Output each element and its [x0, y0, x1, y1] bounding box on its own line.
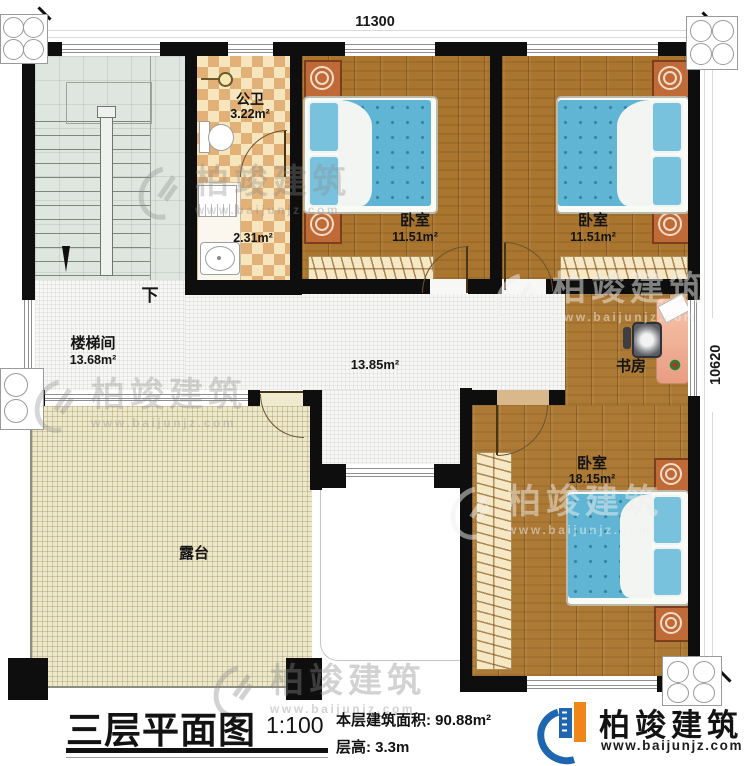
computer-monitor	[632, 322, 662, 358]
wall-lamp-icon	[218, 72, 233, 87]
wall-segment	[302, 279, 430, 294]
brand-website: www.baijunjz.com	[601, 738, 743, 753]
terrace-post	[286, 658, 322, 700]
wall-segment	[490, 42, 502, 290]
window	[527, 42, 658, 56]
floor-terrace	[30, 406, 312, 688]
wall-segment	[460, 388, 472, 676]
wall-segment	[322, 464, 346, 488]
window	[45, 392, 248, 404]
dimension-line	[22, 37, 712, 38]
brand-logo-icon	[537, 700, 595, 756]
floor-area-label: 本层建筑面积: 90.88m²	[336, 709, 491, 730]
wall-segment	[197, 280, 302, 295]
dimension-line	[704, 30, 705, 692]
room-label-bathroom: 公卫	[236, 92, 264, 106]
window	[527, 678, 657, 692]
desk-plant-icon	[668, 358, 682, 372]
scale-label: 1:100	[266, 712, 324, 739]
lower-roof-outline	[320, 488, 461, 661]
stair-direction-label: 下	[142, 287, 159, 304]
wall-segment	[549, 390, 565, 405]
nightstand	[654, 606, 690, 642]
door-leaf	[260, 391, 303, 393]
room-label-stairwell: 楼梯间	[70, 336, 115, 351]
room-label-study: 书房	[616, 359, 646, 374]
room-label-bedroom-top-right: 卧室	[578, 213, 608, 228]
page-title: 三层平面图	[66, 700, 256, 754]
window	[688, 300, 700, 396]
washer-unit	[198, 185, 237, 217]
bed-pillow	[308, 155, 340, 207]
room-area-hallway: 13.85m²	[351, 358, 399, 371]
nightstand	[304, 60, 342, 98]
stair-down-arrow-icon	[62, 246, 70, 272]
window	[346, 466, 434, 480]
window	[22, 300, 35, 373]
room-label-terrace: 露台	[179, 546, 209, 561]
bed-pillow	[652, 547, 683, 597]
wall-segment	[185, 42, 197, 295]
bed-pillow	[651, 101, 683, 153]
stair-treads	[35, 108, 150, 282]
wall-segment	[310, 390, 322, 490]
wall-lamp-line	[201, 78, 219, 80]
dimension-right: 10620	[708, 318, 742, 412]
bed-pillow	[308, 101, 340, 153]
wall-segment	[290, 42, 302, 295]
wall-segment	[460, 676, 527, 692]
brand-logo: 柏竣建筑 www.baijunjz.com	[537, 698, 745, 760]
wall-segment	[248, 390, 260, 406]
bed-sheet	[620, 494, 652, 598]
stair-side-line	[150, 56, 151, 280]
nightstand	[652, 60, 690, 98]
room-area-stairwell: 13.68m²	[70, 354, 117, 367]
stair-rail-cap	[97, 106, 116, 118]
dimension-top: 11300	[330, 14, 420, 30]
bed-sheet	[617, 100, 651, 206]
floor-hallway-main	[185, 293, 565, 390]
nightstand	[654, 458, 690, 492]
window	[62, 42, 160, 56]
title-underline-thick	[66, 748, 328, 753]
terrace-post	[8, 658, 48, 700]
stair-rail	[100, 108, 113, 276]
sink-drain	[217, 256, 221, 260]
room-area-bedroom-top-right: 11.51m²	[570, 231, 616, 244]
room-area-bedroom-top-left: 11.51m²	[392, 231, 438, 244]
wall-segment	[468, 279, 502, 294]
bed-sheet	[338, 100, 372, 206]
floor-plan-page: 11300 10620 公卫 3.22m² 2.31m² 卧室 11.51m² …	[0, 0, 750, 766]
title-underline-thin	[66, 757, 328, 758]
column-symbol	[0, 368, 44, 430]
wall-segment	[472, 390, 497, 405]
column-symbol	[0, 14, 48, 64]
column-symbol	[686, 16, 738, 70]
wall-segment	[546, 279, 688, 294]
door-opening	[497, 390, 549, 405]
office-chair	[623, 327, 631, 349]
toilet-bowl	[208, 124, 234, 151]
brand-logo-building-orange	[574, 702, 586, 742]
brand-logo-building-blue	[559, 708, 572, 738]
wardrobe	[476, 452, 512, 670]
room-label-bedroom-top-left: 卧室	[400, 213, 430, 228]
floor-hallway-lower	[322, 390, 460, 464]
wall-segment	[22, 42, 35, 300]
bed-pillow	[652, 495, 683, 545]
room-area-bedroom-bottom: 18.15m²	[569, 473, 616, 486]
room-area-washroom: 2.31m²	[233, 232, 273, 245]
room-label-bedroom-bottom: 卧室	[577, 456, 607, 471]
floor-height-label: 层高: 3.3m	[336, 736, 409, 757]
dimension-line	[22, 30, 712, 31]
bed-pillow	[651, 155, 683, 207]
window	[228, 42, 273, 56]
window	[345, 42, 435, 56]
room-area-bathroom: 3.22m²	[230, 108, 270, 121]
